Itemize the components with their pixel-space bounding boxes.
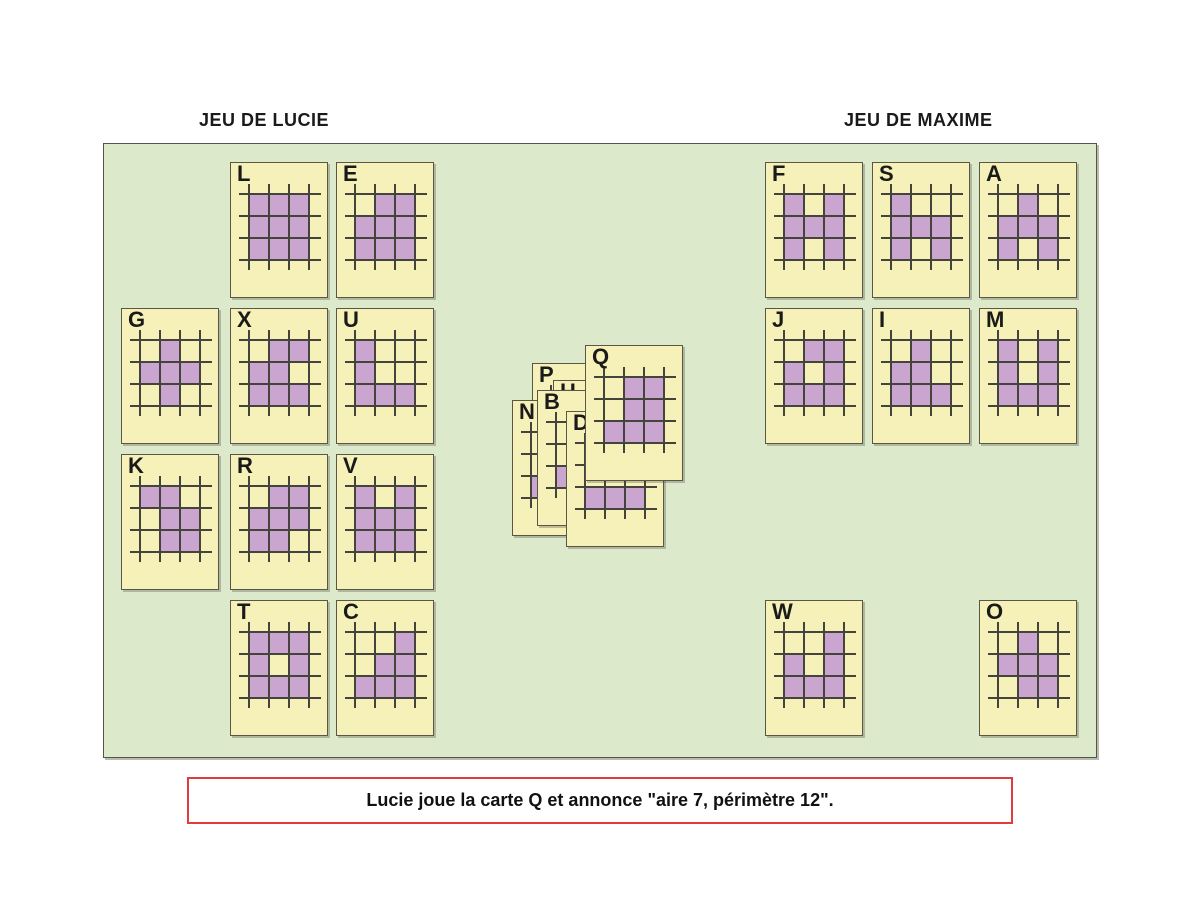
grid-line bbox=[239, 383, 321, 385]
filled-cell bbox=[289, 194, 309, 216]
grid-line bbox=[199, 476, 201, 562]
page: JEU DE LUCIE JEU DE MAXIME Lucie joue la… bbox=[0, 0, 1200, 900]
filled-cell bbox=[355, 216, 375, 238]
grid-line bbox=[288, 476, 290, 562]
grid-line bbox=[823, 330, 825, 416]
grid-line bbox=[239, 215, 321, 217]
filled-cell bbox=[395, 654, 415, 676]
filled-cell bbox=[355, 384, 375, 406]
filled-cell bbox=[395, 632, 415, 654]
filled-cell bbox=[160, 530, 180, 552]
grid-line bbox=[988, 237, 1070, 239]
grid-line bbox=[843, 622, 845, 708]
grid-line bbox=[881, 339, 963, 341]
grid-line bbox=[803, 184, 805, 270]
card-W[interactable]: W bbox=[765, 600, 863, 736]
grid-line bbox=[268, 330, 270, 416]
filled-cell bbox=[1038, 654, 1058, 676]
filled-cell bbox=[289, 486, 309, 508]
grid-line bbox=[823, 622, 825, 708]
grid-line bbox=[1037, 622, 1039, 708]
filled-cell bbox=[395, 530, 415, 552]
grid-line bbox=[179, 330, 181, 416]
lucie-hand-title: JEU DE LUCIE bbox=[199, 110, 329, 131]
grid-line bbox=[130, 529, 212, 531]
grid-line bbox=[988, 405, 1070, 407]
grid-line bbox=[774, 237, 856, 239]
grid-line bbox=[239, 675, 321, 677]
grid-line bbox=[414, 476, 416, 562]
filled-cell bbox=[375, 238, 395, 260]
grid-line bbox=[988, 339, 1070, 341]
card-V[interactable]: V bbox=[336, 454, 434, 590]
grid-line bbox=[374, 184, 376, 270]
grid-line bbox=[288, 622, 290, 708]
card-K[interactable]: K bbox=[121, 454, 219, 590]
grid-line bbox=[268, 476, 270, 562]
filled-cell bbox=[289, 384, 309, 406]
filled-cell bbox=[395, 216, 415, 238]
card-I[interactable]: I bbox=[872, 308, 970, 444]
filled-cell bbox=[355, 530, 375, 552]
filled-cell bbox=[249, 654, 269, 676]
grid-line bbox=[239, 551, 321, 553]
filled-cell bbox=[624, 421, 644, 443]
maxime-hand-title: JEU DE MAXIME bbox=[844, 110, 993, 131]
grid-line bbox=[199, 330, 201, 416]
filled-cell bbox=[824, 194, 844, 216]
grid-line bbox=[248, 184, 250, 270]
filled-cell bbox=[644, 421, 664, 443]
grid-line bbox=[988, 631, 1070, 633]
card-R[interactable]: R bbox=[230, 454, 328, 590]
filled-cell bbox=[931, 384, 951, 406]
grid-line bbox=[950, 184, 952, 270]
card-S[interactable]: S bbox=[872, 162, 970, 298]
filled-cell bbox=[289, 238, 309, 260]
grid-line bbox=[345, 675, 427, 677]
filled-cell bbox=[1038, 384, 1058, 406]
grid-line bbox=[643, 367, 645, 453]
filled-cell bbox=[395, 194, 415, 216]
grid-line bbox=[179, 476, 181, 562]
grid-line bbox=[354, 184, 356, 270]
filled-cell bbox=[824, 632, 844, 654]
grid-line bbox=[374, 622, 376, 708]
filled-cell bbox=[355, 340, 375, 362]
grid-line bbox=[308, 476, 310, 562]
card-letter: O bbox=[986, 599, 1003, 625]
grid-line bbox=[910, 184, 912, 270]
grid-line bbox=[248, 330, 250, 416]
grid-line bbox=[988, 215, 1070, 217]
filled-cell bbox=[911, 362, 931, 384]
grid-line bbox=[288, 184, 290, 270]
grid-line bbox=[594, 398, 676, 400]
card-letter: N bbox=[519, 399, 535, 425]
grid-line bbox=[575, 508, 657, 510]
filled-cell bbox=[249, 508, 269, 530]
card-E[interactable]: E bbox=[336, 162, 434, 298]
grid-line bbox=[239, 237, 321, 239]
filled-cell bbox=[1018, 194, 1038, 216]
card-F[interactable]: F bbox=[765, 162, 863, 298]
card-letter: M bbox=[986, 307, 1004, 333]
card-M[interactable]: M bbox=[979, 308, 1077, 444]
grid-line bbox=[881, 237, 963, 239]
filled-cell bbox=[160, 508, 180, 530]
filled-cell bbox=[824, 216, 844, 238]
filled-cell bbox=[269, 216, 289, 238]
grid-line bbox=[774, 383, 856, 385]
filled-cell bbox=[624, 399, 644, 421]
grid-line bbox=[783, 184, 785, 270]
filled-cell bbox=[375, 530, 395, 552]
grid-line bbox=[530, 422, 532, 508]
filled-cell bbox=[824, 384, 844, 406]
filled-cell bbox=[269, 508, 289, 530]
grid-line bbox=[997, 622, 999, 708]
grid-line bbox=[345, 485, 427, 487]
grid-line bbox=[139, 476, 141, 562]
card-letter: F bbox=[772, 161, 785, 187]
grid-line bbox=[159, 476, 161, 562]
grid-line bbox=[345, 507, 427, 509]
grid-line bbox=[414, 622, 416, 708]
filled-cell bbox=[891, 362, 911, 384]
grid-line bbox=[881, 405, 963, 407]
grid-line bbox=[881, 259, 963, 261]
card-letter: R bbox=[237, 453, 253, 479]
grid-line bbox=[988, 675, 1070, 677]
filled-cell bbox=[1038, 216, 1058, 238]
grid-line bbox=[997, 330, 999, 416]
grid-line bbox=[248, 476, 250, 562]
filled-cell bbox=[355, 508, 375, 530]
grid-line bbox=[881, 193, 963, 195]
card-letter: U bbox=[343, 307, 359, 333]
grid-line bbox=[774, 193, 856, 195]
filled-cell bbox=[891, 384, 911, 406]
filled-cell bbox=[140, 486, 160, 508]
card-L[interactable]: L bbox=[230, 162, 328, 298]
filled-cell bbox=[249, 530, 269, 552]
grid-line bbox=[774, 259, 856, 261]
grid-line bbox=[774, 697, 856, 699]
filled-cell bbox=[644, 377, 664, 399]
grid-line bbox=[881, 361, 963, 363]
grid-line bbox=[774, 653, 856, 655]
filled-cell bbox=[395, 676, 415, 698]
filled-cell bbox=[1018, 632, 1038, 654]
grid-line bbox=[345, 551, 427, 553]
filled-cell bbox=[804, 340, 824, 362]
grid-line bbox=[890, 330, 892, 416]
grid-line bbox=[308, 184, 310, 270]
grid-line bbox=[130, 361, 212, 363]
filled-cell bbox=[395, 238, 415, 260]
filled-cell bbox=[395, 486, 415, 508]
grid-line bbox=[930, 184, 932, 270]
filled-cell bbox=[395, 384, 415, 406]
card-letter: A bbox=[986, 161, 1002, 187]
grid-line bbox=[374, 476, 376, 562]
filled-cell bbox=[804, 676, 824, 698]
card-O[interactable]: O bbox=[979, 600, 1077, 736]
filled-cell bbox=[249, 238, 269, 260]
grid-line bbox=[268, 184, 270, 270]
grid-line bbox=[239, 339, 321, 341]
grid-line bbox=[988, 259, 1070, 261]
filled-cell bbox=[375, 676, 395, 698]
grid-line bbox=[239, 653, 321, 655]
grid-line bbox=[950, 330, 952, 416]
grid-line bbox=[603, 367, 605, 453]
filled-cell bbox=[624, 377, 644, 399]
filled-cell bbox=[180, 508, 200, 530]
filled-cell bbox=[269, 362, 289, 384]
grid-line bbox=[1057, 622, 1059, 708]
grid-line bbox=[394, 476, 396, 562]
filled-cell bbox=[249, 384, 269, 406]
filled-cell bbox=[998, 216, 1018, 238]
grid-line bbox=[239, 485, 321, 487]
card-letter: I bbox=[879, 307, 885, 333]
grid-line bbox=[239, 697, 321, 699]
filled-cell bbox=[804, 216, 824, 238]
filled-cell bbox=[644, 399, 664, 421]
filled-cell bbox=[269, 194, 289, 216]
filled-cell bbox=[289, 654, 309, 676]
filled-cell bbox=[160, 340, 180, 362]
grid-line bbox=[239, 507, 321, 509]
grid-line bbox=[988, 361, 1070, 363]
card-letter: P bbox=[539, 362, 554, 388]
filled-cell bbox=[998, 340, 1018, 362]
grid-line bbox=[345, 259, 427, 261]
filled-cell bbox=[249, 216, 269, 238]
filled-cell bbox=[289, 340, 309, 362]
filled-cell bbox=[160, 362, 180, 384]
filled-cell bbox=[289, 632, 309, 654]
card-letter: B bbox=[544, 389, 560, 415]
filled-cell bbox=[160, 384, 180, 406]
card-T[interactable]: T bbox=[230, 600, 328, 736]
grid-line bbox=[803, 622, 805, 708]
filled-cell bbox=[375, 654, 395, 676]
grid-line bbox=[623, 367, 625, 453]
grid-line bbox=[308, 330, 310, 416]
grid-line bbox=[345, 361, 427, 363]
filled-cell bbox=[784, 384, 804, 406]
filled-cell bbox=[891, 194, 911, 216]
grid-line bbox=[1057, 330, 1059, 416]
grid-line bbox=[774, 361, 856, 363]
filled-cell bbox=[249, 632, 269, 654]
filled-cell bbox=[375, 384, 395, 406]
grid-line bbox=[239, 259, 321, 261]
grid-line bbox=[997, 184, 999, 270]
filled-cell bbox=[824, 654, 844, 676]
card-G[interactable]: G bbox=[121, 308, 219, 444]
grid-line bbox=[354, 622, 356, 708]
filled-cell bbox=[998, 238, 1018, 260]
card-letter: X bbox=[237, 307, 252, 333]
filled-cell bbox=[824, 238, 844, 260]
card-Q[interactable]: Q bbox=[585, 345, 683, 481]
filled-cell bbox=[355, 676, 375, 698]
card-letter: V bbox=[343, 453, 358, 479]
grid-line bbox=[354, 476, 356, 562]
announcement-box: Lucie joue la carte Q et annonce "aire 7… bbox=[187, 777, 1013, 824]
card-X[interactable]: X bbox=[230, 308, 328, 444]
card-letter: T bbox=[237, 599, 250, 625]
card-letter: E bbox=[343, 161, 358, 187]
grid-line bbox=[575, 486, 657, 488]
filled-cell bbox=[355, 362, 375, 384]
card-letter: W bbox=[772, 599, 793, 625]
grid-line bbox=[1037, 330, 1039, 416]
grid-line bbox=[414, 330, 416, 416]
filled-cell bbox=[269, 486, 289, 508]
filled-cell bbox=[784, 676, 804, 698]
filled-cell bbox=[1018, 676, 1038, 698]
grid-line bbox=[988, 383, 1070, 385]
grid-line bbox=[239, 631, 321, 633]
filled-cell bbox=[355, 238, 375, 260]
filled-cell bbox=[824, 676, 844, 698]
grid-line bbox=[345, 339, 427, 341]
grid-line bbox=[394, 184, 396, 270]
grid-line bbox=[1037, 184, 1039, 270]
grid-line bbox=[308, 622, 310, 708]
grid-line bbox=[239, 193, 321, 195]
grid-line bbox=[130, 485, 212, 487]
filled-cell bbox=[824, 340, 844, 362]
card-C[interactable]: C bbox=[336, 600, 434, 736]
grid-line bbox=[239, 361, 321, 363]
filled-cell bbox=[1018, 384, 1038, 406]
grid-line bbox=[139, 330, 141, 416]
filled-cell bbox=[1018, 216, 1038, 238]
filled-cell bbox=[160, 486, 180, 508]
grid-line bbox=[910, 330, 912, 416]
grid-line bbox=[890, 184, 892, 270]
filled-cell bbox=[289, 216, 309, 238]
grid-line bbox=[555, 412, 557, 498]
filled-cell bbox=[784, 654, 804, 676]
filled-cell bbox=[998, 362, 1018, 384]
filled-cell bbox=[375, 216, 395, 238]
filled-cell bbox=[249, 676, 269, 698]
filled-cell bbox=[891, 238, 911, 260]
grid-line bbox=[414, 184, 416, 270]
card-J[interactable]: J bbox=[765, 308, 863, 444]
filled-cell bbox=[605, 487, 625, 509]
grid-line bbox=[288, 330, 290, 416]
filled-cell bbox=[931, 216, 951, 238]
filled-cell bbox=[1018, 654, 1038, 676]
card-U[interactable]: U bbox=[336, 308, 434, 444]
grid-line bbox=[345, 405, 427, 407]
filled-cell bbox=[249, 194, 269, 216]
polyomino-grid bbox=[873, 309, 971, 445]
grid-line bbox=[345, 653, 427, 655]
grid-line bbox=[843, 184, 845, 270]
filled-cell bbox=[784, 194, 804, 216]
grid-line bbox=[594, 376, 676, 378]
grid-line bbox=[1017, 622, 1019, 708]
grid-line bbox=[248, 622, 250, 708]
grid-line bbox=[774, 675, 856, 677]
filled-cell bbox=[269, 340, 289, 362]
card-A[interactable]: A bbox=[979, 162, 1077, 298]
card-letter: K bbox=[128, 453, 144, 479]
filled-cell bbox=[375, 194, 395, 216]
card-letter: Q bbox=[592, 344, 609, 370]
announcement-text: Lucie joue la carte Q et annonce "aire 7… bbox=[366, 790, 833, 811]
filled-cell bbox=[804, 384, 824, 406]
grid-line bbox=[774, 405, 856, 407]
filled-cell bbox=[180, 530, 200, 552]
grid-line bbox=[345, 529, 427, 531]
grid-line bbox=[988, 193, 1070, 195]
grid-line bbox=[374, 330, 376, 416]
filled-cell bbox=[375, 508, 395, 530]
grid-line bbox=[783, 330, 785, 416]
grid-line bbox=[774, 339, 856, 341]
filled-cell bbox=[269, 530, 289, 552]
grid-line bbox=[130, 339, 212, 341]
filled-cell bbox=[269, 632, 289, 654]
grid-line bbox=[1057, 184, 1059, 270]
filled-cell bbox=[784, 238, 804, 260]
grid-line bbox=[268, 622, 270, 708]
filled-cell bbox=[355, 486, 375, 508]
filled-cell bbox=[1038, 676, 1058, 698]
grid-line bbox=[159, 330, 161, 416]
grid-line bbox=[1017, 184, 1019, 270]
filled-cell bbox=[911, 384, 931, 406]
filled-cell bbox=[289, 508, 309, 530]
card-letter: S bbox=[879, 161, 894, 187]
filled-cell bbox=[1038, 238, 1058, 260]
grid-line bbox=[988, 697, 1070, 699]
filled-cell bbox=[289, 676, 309, 698]
filled-cell bbox=[784, 216, 804, 238]
card-letter: L bbox=[237, 161, 250, 187]
grid-line bbox=[130, 507, 212, 509]
grid-line bbox=[345, 215, 427, 217]
grid-line bbox=[345, 193, 427, 195]
grid-line bbox=[774, 215, 856, 217]
filled-cell bbox=[931, 238, 951, 260]
grid-line bbox=[130, 551, 212, 553]
grid-line bbox=[1017, 330, 1019, 416]
filled-cell bbox=[891, 216, 911, 238]
card-letter: J bbox=[772, 307, 784, 333]
grid-line bbox=[783, 622, 785, 708]
grid-line bbox=[843, 330, 845, 416]
filled-cell bbox=[604, 421, 624, 443]
card-letter: G bbox=[128, 307, 145, 333]
grid-line bbox=[594, 420, 676, 422]
grid-line bbox=[345, 697, 427, 699]
grid-line bbox=[930, 330, 932, 416]
filled-cell bbox=[784, 362, 804, 384]
filled-cell bbox=[1038, 362, 1058, 384]
filled-cell bbox=[998, 384, 1018, 406]
